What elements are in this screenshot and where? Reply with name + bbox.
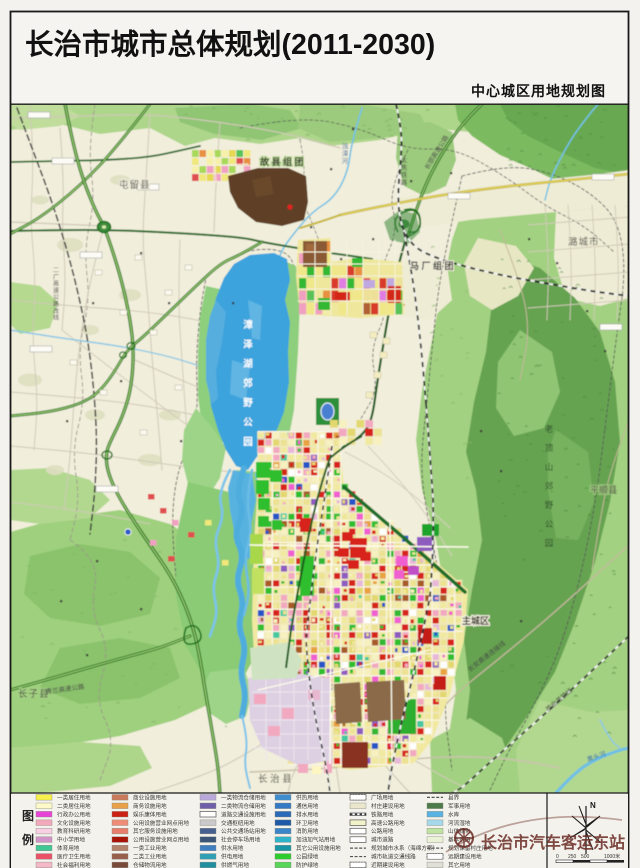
svg-text:焦: 焦 (401, 163, 408, 172)
svg-text:公: 公 (243, 418, 253, 429)
svg-text:社会福利用地: 社会福利用地 (57, 861, 91, 868)
svg-text:供电用地: 供电用地 (221, 853, 244, 861)
svg-text:广: 广 (53, 273, 59, 281)
svg-text:商务设施用地: 商务设施用地 (133, 802, 167, 810)
svg-text:商业设施用地: 商业设施用地 (133, 793, 167, 801)
svg-text:一类工业用地: 一类工业用地 (133, 844, 167, 852)
svg-text:二类居住用地: 二类居住用地 (57, 802, 91, 810)
svg-text:山: 山 (545, 462, 554, 472)
svg-text:一类物流仓储用地: 一类物流仓储用地 (221, 793, 266, 801)
svg-text:浊: 浊 (342, 141, 349, 150)
svg-text:老: 老 (545, 424, 554, 434)
svg-text:公园绿地: 公园绿地 (296, 853, 319, 861)
svg-text:中小学用地: 中小学用地 (57, 836, 85, 844)
svg-text:公路用地: 公路用地 (371, 827, 394, 835)
svg-text:医疗卫生用地: 医疗卫生用地 (57, 853, 91, 861)
svg-text:漳: 漳 (243, 319, 253, 331)
svg-text:1000米: 1000米 (604, 853, 620, 860)
svg-text:水库: 水库 (448, 810, 460, 818)
svg-text:N: N (590, 801, 596, 810)
svg-text:通信用地: 通信用地 (296, 802, 319, 810)
svg-text:屯留县: 屯留县 (119, 179, 151, 191)
svg-text:图: 图 (22, 809, 34, 823)
svg-text:长治市城市总体规划(2011-2030): 长治市城市总体规划(2011-2030) (25, 28, 435, 61)
svg-text:顶: 顶 (545, 443, 554, 453)
svg-text:文化设施用地: 文化设施用地 (57, 819, 91, 827)
svg-text:250: 250 (568, 854, 577, 860)
svg-text:平顺县: 平顺县 (590, 485, 617, 495)
svg-text:公共交通场站用地: 公共交通场站用地 (221, 827, 266, 835)
svg-text:长 治 县: 长 治 县 (258, 773, 292, 785)
svg-text:二类物流仓储用地: 二类物流仓储用地 (221, 802, 266, 810)
svg-text:马 厂 组 团: 马 厂 组 团 (410, 260, 454, 271)
svg-text:城市道路: 城市道路 (371, 836, 394, 844)
svg-text:城市轨道交通线路: 城市轨道交通线路 (371, 853, 416, 861)
svg-text:其它服务设施用地: 其它服务设施用地 (133, 827, 178, 835)
svg-text:供燃气用地: 供燃气用地 (221, 861, 249, 868)
svg-text:教育科研用地: 教育科研用地 (57, 827, 91, 835)
svg-text:速: 速 (53, 287, 59, 294)
svg-text:园: 园 (243, 437, 253, 448)
svg-text:野: 野 (545, 500, 554, 510)
svg-text:社会停车场用地: 社会停车场用地 (221, 836, 261, 844)
svg-text:近期建设用地: 近期建设用地 (371, 861, 405, 868)
svg-text:仓储物流用地: 仓储物流用地 (133, 861, 167, 868)
svg-text:500: 500 (581, 854, 590, 860)
svg-text:体育用地: 体育用地 (57, 844, 80, 852)
svg-text:铁: 铁 (401, 170, 408, 179)
svg-text:改: 改 (53, 307, 59, 315)
svg-text:行政办公用地: 行政办公用地 (57, 810, 91, 818)
svg-text:漳: 漳 (342, 149, 349, 158)
svg-text:其它用地: 其它用地 (448, 861, 471, 868)
svg-text:河: 河 (342, 157, 349, 165)
svg-text:0: 0 (556, 854, 559, 860)
svg-text:村庄建设用地: 村庄建设用地 (371, 802, 405, 810)
svg-text:铁路用地: 铁路用地 (371, 810, 394, 818)
svg-text:二类工业用地: 二类工业用地 (133, 853, 167, 861)
svg-text:郊: 郊 (545, 481, 554, 491)
svg-text:园: 园 (545, 538, 554, 548)
svg-text:供热用地: 供热用地 (296, 793, 319, 801)
svg-text:泽: 泽 (243, 339, 253, 351)
svg-text:河流湿地: 河流湿地 (448, 819, 471, 827)
svg-text:公: 公 (53, 294, 59, 301)
svg-text:交通枢纽用地: 交通枢纽用地 (221, 819, 255, 827)
svg-text:其它公用设施用地: 其它公用设施用地 (296, 844, 341, 852)
svg-text:高: 高 (53, 280, 59, 288)
svg-text:例: 例 (22, 832, 34, 847)
svg-text:消防用地: 消防用地 (296, 827, 319, 835)
svg-text:一类居住用地: 一类居住用地 (57, 793, 91, 801)
svg-text:潞城市: 潞城市 (568, 236, 600, 248)
svg-text:公用设施营业网点用地: 公用设施营业网点用地 (133, 819, 189, 827)
svg-text:供水用地: 供水用地 (221, 844, 244, 852)
svg-text:湖: 湖 (243, 358, 253, 370)
svg-text:路: 路 (401, 178, 408, 187)
svg-text:公: 公 (545, 519, 554, 529)
svg-text:公用设施营业网点用地: 公用设施营业网点用地 (133, 836, 189, 844)
svg-text:高速公路用地: 高速公路用地 (371, 819, 405, 827)
svg-text:环卫用地: 环卫用地 (296, 819, 319, 827)
svg-text:路: 路 (53, 300, 59, 308)
svg-text:娱乐康体用地: 娱乐康体用地 (133, 810, 167, 818)
svg-text:中心城区用地规划图: 中心城区用地规划图 (471, 83, 606, 99)
svg-text:长治市汽车客运东站: 长治市汽车客运东站 (481, 833, 625, 852)
svg-text:二: 二 (53, 268, 59, 274)
svg-text:线: 线 (53, 314, 59, 322)
svg-text:加油加气站用地: 加油加气站用地 (296, 836, 336, 844)
svg-text:野: 野 (243, 398, 253, 409)
svg-text:太: 太 (401, 155, 408, 164)
svg-text:防护绿地: 防护绿地 (296, 861, 319, 868)
svg-text:县界: 县界 (448, 794, 460, 801)
svg-text:郊: 郊 (243, 378, 253, 390)
svg-text:主城区: 主城区 (462, 615, 489, 626)
svg-text:故 县 组 团: 故 县 组 团 (260, 156, 304, 167)
svg-text:远期建设用地: 远期建设用地 (448, 853, 482, 861)
svg-text:广场用地: 广场用地 (371, 793, 394, 801)
svg-text:排水用地: 排水用地 (296, 810, 319, 818)
svg-text:道路交通设施用地: 道路交通设施用地 (221, 810, 266, 818)
svg-text:军事用地: 军事用地 (448, 802, 471, 810)
